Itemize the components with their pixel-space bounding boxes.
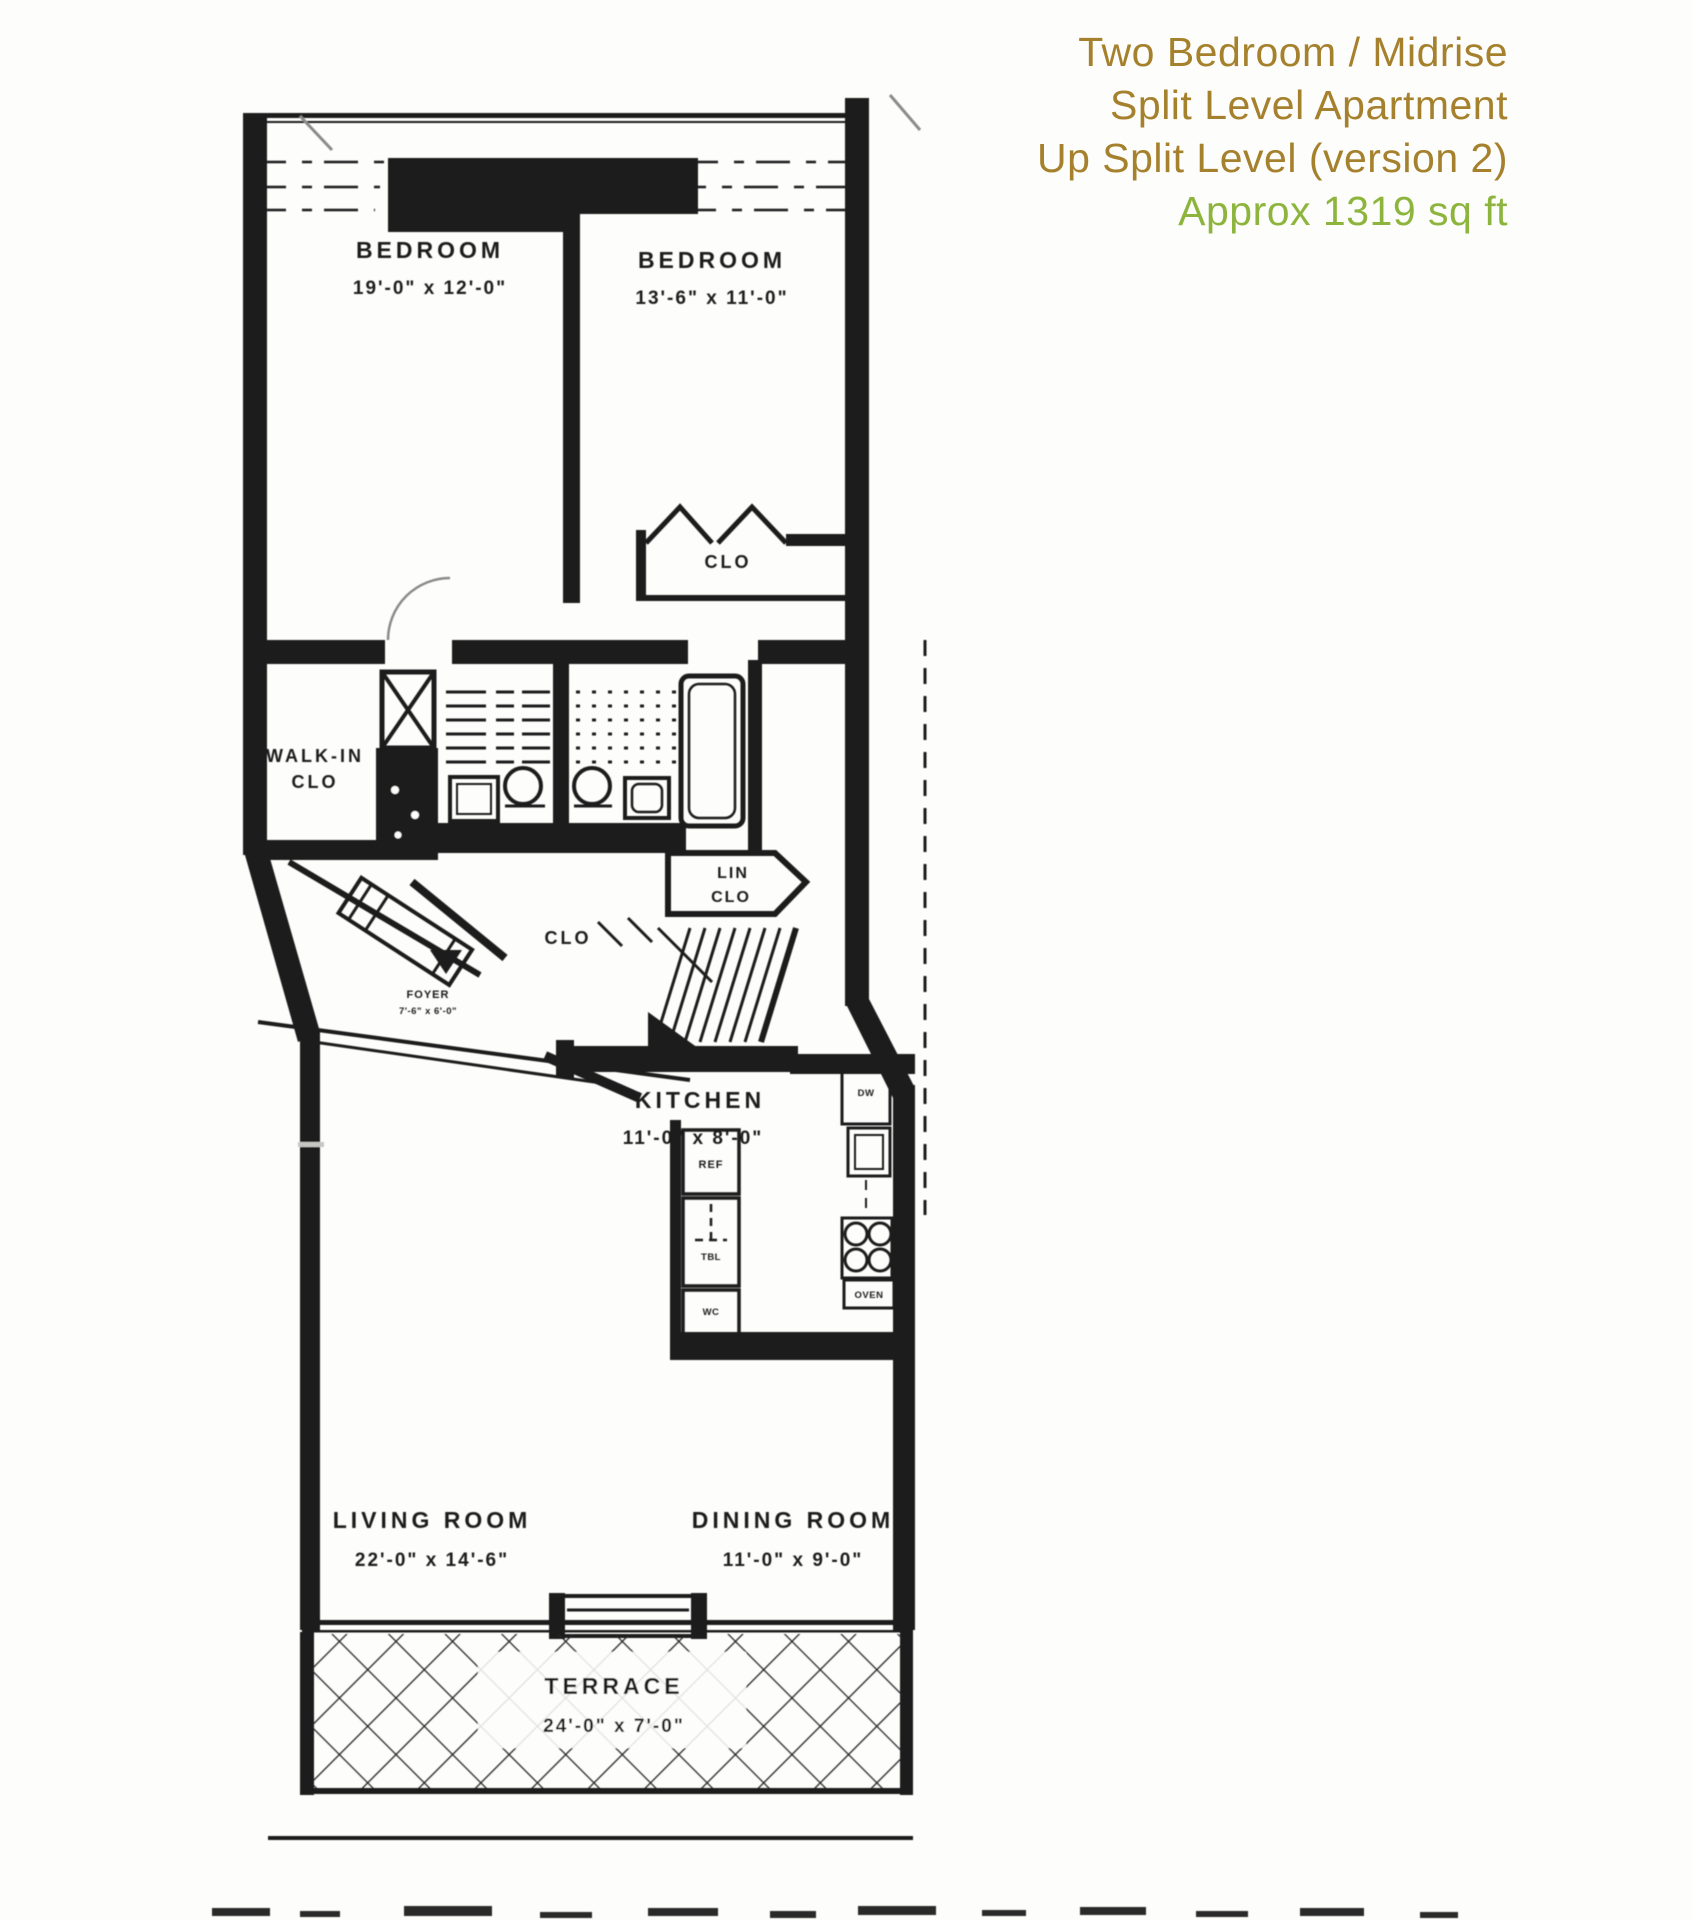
bath1-toilet	[505, 768, 541, 804]
scan-smudge	[298, 1142, 324, 1147]
table-centerline	[695, 1204, 727, 1240]
dishwasher-label: DW	[858, 1088, 875, 1099]
dining-room-label: DINING ROOM	[692, 1507, 894, 1533]
foyer-dims: 7'-6" x 6'-0"	[399, 1006, 457, 1017]
plan-labels: BEDROOM 19'-0" x 12'-0" BEDROOM 13'-6" x…	[266, 237, 894, 1737]
bath-bottom-wall	[436, 823, 686, 853]
left-wall-upper	[243, 113, 267, 660]
bedroom-divider-wall	[563, 158, 580, 603]
bedroom1-label: BEDROOM	[356, 237, 504, 263]
closet-wall	[786, 534, 845, 546]
oven-label: OVEN	[855, 1290, 884, 1301]
burner-icon	[869, 1223, 891, 1245]
left-wall-lower	[300, 1030, 320, 1630]
kitchen-label: KITCHEN	[635, 1087, 765, 1113]
top-window-wall	[245, 113, 869, 118]
walk-in-closet-label-2: CLO	[292, 772, 339, 792]
bifold-doors	[646, 507, 786, 543]
hall-closet-doors	[598, 918, 712, 982]
planter-band-left	[388, 158, 563, 232]
stair-stringer	[761, 928, 796, 1042]
terrace-left-wall	[300, 1632, 314, 1795]
kitchen-sink-basin	[855, 1135, 883, 1169]
hall-wall-seg3	[758, 640, 845, 664]
linen-closet-label-1: LIN	[717, 865, 749, 882]
closet-bottom-line	[636, 595, 845, 601]
burner-icon	[869, 1249, 891, 1271]
closet-jamb	[636, 530, 646, 600]
kitchen-top-wall	[556, 1046, 798, 1072]
kitchen-left-wall	[670, 1120, 681, 1338]
planter-band-right	[560, 158, 698, 214]
refrigerator-label: REF	[699, 1159, 724, 1171]
bath2-toilet	[574, 768, 610, 804]
plumbing-wall-mass	[376, 748, 438, 850]
burner-icon	[845, 1249, 867, 1271]
bedroom-closet-label: CLO	[705, 552, 752, 572]
living-room-dims: 22'-0" x 14'-6"	[355, 1550, 509, 1571]
bedroom1-door-arc	[388, 578, 450, 640]
table-label: TBL	[701, 1252, 721, 1263]
wc-label: WC	[703, 1307, 720, 1318]
walkin-bottom-wall	[265, 840, 438, 860]
page: Two Bedroom / Midrise Split Level Apartm…	[0, 0, 1692, 1920]
dining-room-dims: 11'-0" x 9'-0"	[723, 1550, 864, 1571]
hall-wall-seg1	[267, 640, 385, 664]
bath1-floor-lines	[446, 692, 550, 762]
sliding-door-jamb	[549, 1593, 565, 1639]
stair-base-wedge	[648, 1012, 698, 1048]
hall-wall-seg2	[452, 640, 688, 664]
bathroom-2	[574, 692, 676, 818]
speckle	[395, 832, 402, 839]
staircase	[648, 928, 796, 1048]
bedroom2-dims: 13'-6" x 11'-0"	[635, 288, 788, 309]
bath-right-wall	[748, 660, 762, 856]
bath1-sink-basin	[457, 784, 491, 814]
top-window-wall-inner	[245, 121, 869, 123]
sliding-door-jamb	[691, 1593, 707, 1639]
bathtub	[681, 676, 743, 826]
hall-closet-label: CLO	[545, 928, 592, 948]
right-wall-upper	[845, 98, 869, 1006]
foyer-label: FOYER	[407, 989, 450, 1001]
scan-artifacts	[212, 1906, 1458, 1918]
bathroom-1	[446, 692, 550, 821]
floor-plan: BEDROOM 19'-0" x 12'-0" BEDROOM 13'-6" x…	[0, 0, 1692, 1920]
terrace-label: TERRACE	[544, 1673, 683, 1699]
ground-line	[268, 1836, 913, 1840]
bedroom2-label: BEDROOM	[638, 247, 786, 273]
living-room-label: LIVING ROOM	[333, 1507, 532, 1533]
terrace-boundary-line-2	[302, 1630, 913, 1633]
terrace-dims: 24'-0" x 7'-0"	[543, 1716, 685, 1737]
speckle	[391, 786, 399, 794]
kitchen-dims: 11'-0" x 8'-0"	[623, 1128, 764, 1149]
terrace-bottom-wall	[300, 1788, 913, 1794]
bath-divider-wall	[553, 664, 569, 826]
bedroom1-dims: 19'-0" x 12'-0"	[353, 278, 507, 299]
bedroom-area	[267, 158, 845, 664]
linen-closet-label-2: CLO	[711, 889, 751, 906]
left-wall-chamfer	[243, 848, 320, 1042]
bathtub-basin	[689, 684, 735, 818]
shaft-x-icon	[382, 672, 434, 748]
kitchen-right-appliances	[842, 1072, 894, 1308]
left-wall-mid	[243, 655, 267, 855]
bath2-floor-dots	[576, 692, 676, 762]
bath2-sink-basin	[632, 784, 662, 812]
kitchen-bottom-wall	[670, 1332, 915, 1360]
speckle	[411, 811, 419, 819]
burner-icon	[845, 1223, 867, 1245]
walk-in-closet-label-1: WALK-IN	[266, 746, 364, 766]
